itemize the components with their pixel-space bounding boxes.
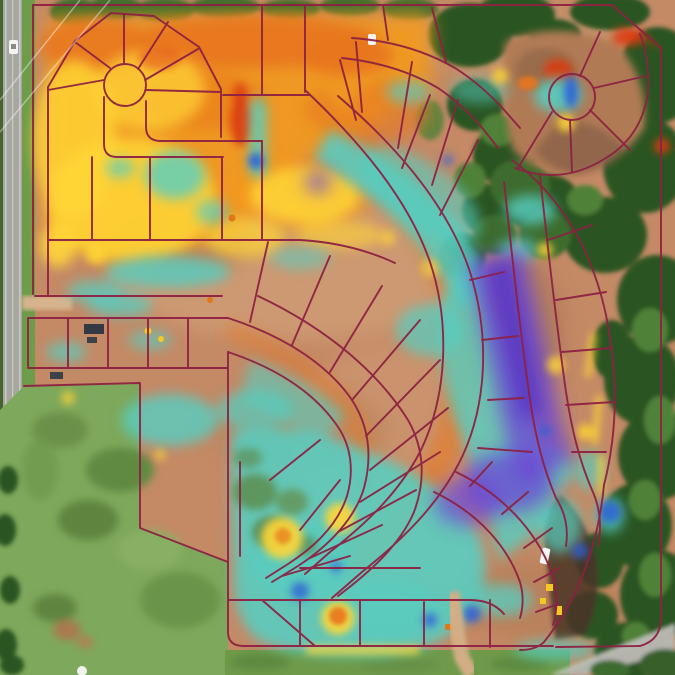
trailer — [84, 324, 104, 334]
site-entrance-road — [22, 296, 72, 310]
aerial-map-view[interactable] — [0, 0, 675, 675]
orthomosaic-canvas — [0, 0, 675, 675]
